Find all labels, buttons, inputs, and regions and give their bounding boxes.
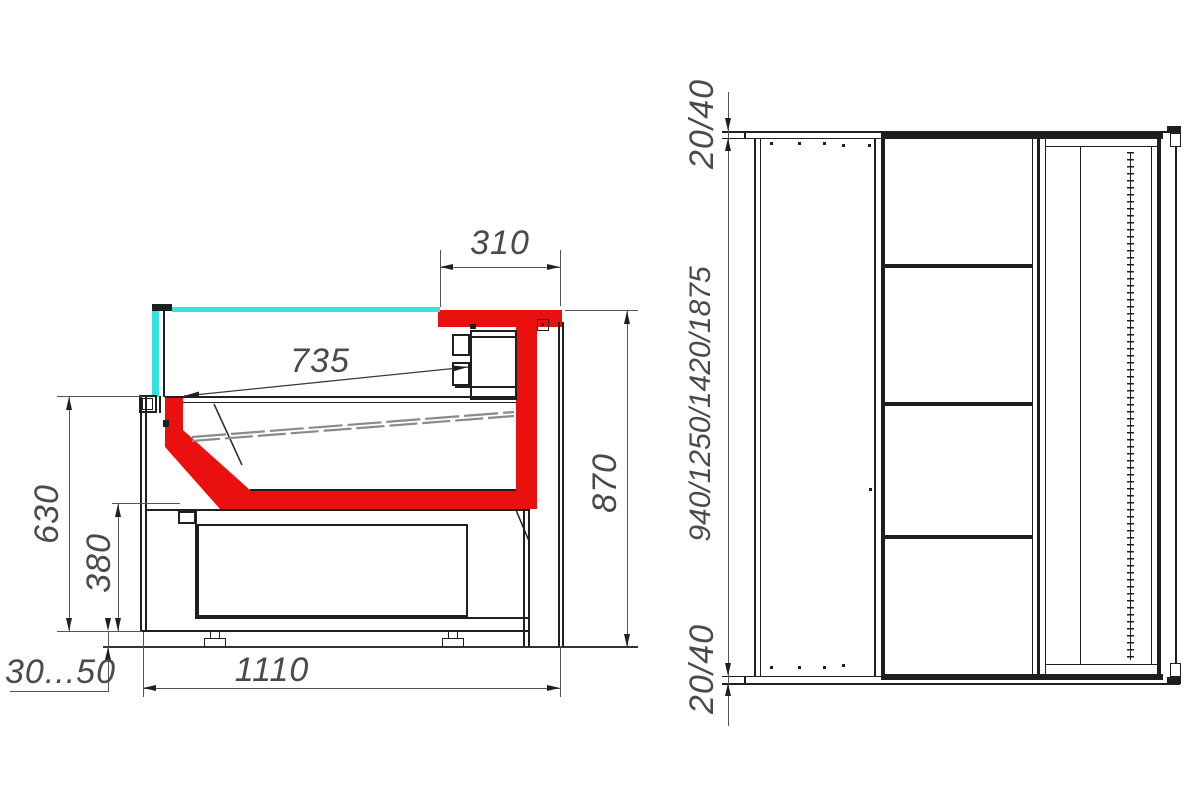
dim-310-label: 310 (470, 226, 530, 260)
plan-bottom-edge-outer (722, 683, 1180, 685)
dim-2040-top-label: 20/40 (685, 99, 719, 169)
shelf-divider-1 (885, 264, 1033, 268)
screw-dot (842, 664, 845, 667)
dim-630-label: 630 (30, 479, 64, 549)
glass-section-left-line (1045, 139, 1046, 676)
red-profile-overlay (0, 0, 1200, 800)
corner-bracket-bottom-block (1170, 663, 1181, 677)
dim-380-label: 380 (82, 528, 116, 598)
rear-compartment-wall-a (523, 509, 525, 647)
dim-870-arrow-bottom (624, 634, 630, 647)
well-floor-line (250, 489, 516, 491)
dim-870-arrow-top (624, 311, 630, 324)
dim-feet-shelf (10, 691, 108, 692)
dim-2040-top-arrow-lower (725, 138, 731, 151)
front-panel-outer (140, 396, 142, 632)
fastener-dot (541, 323, 544, 326)
corner-bracket-bottom-bar (1167, 677, 1181, 684)
evaporator-bracket-lower (452, 362, 470, 386)
dim-1110-arrow-left (143, 685, 156, 691)
dim-1110-arrow-right (547, 685, 560, 691)
front-bracket-inner (142, 398, 153, 410)
dim-1110-ext-right (560, 646, 561, 697)
dim-length-options-label: 940/1250/1420/1875 (684, 234, 718, 574)
screw-dot (842, 144, 845, 147)
deck-surface-line-a (192, 412, 514, 437)
front-bracket-edge (159, 396, 161, 413)
glass-band-top-line (1045, 146, 1160, 147)
screw-dot (869, 488, 872, 491)
plan-bottom-band-end (744, 676, 746, 684)
evaporator-mount-mark (470, 324, 476, 329)
dim-630-arrow-top (66, 397, 72, 410)
corner-bracket-top-bar (1167, 126, 1181, 133)
dim-380-arrow-bottom (115, 618, 121, 631)
glass-curve-line (1080, 147, 1081, 665)
dim-2040-bottom-label: 20/40 (685, 644, 719, 714)
dim-380-arrow-top (115, 504, 121, 517)
dim-1110-label: 1110 (232, 653, 312, 687)
front-panel-inner (145, 396, 147, 632)
well-liner-line (214, 404, 242, 465)
base-step-tab (178, 511, 196, 524)
screw-dot (798, 142, 801, 145)
left-panel-right-edge (874, 139, 876, 676)
front-fastener-mark (163, 420, 169, 427)
screw-dot (823, 666, 826, 669)
screw-dot (823, 142, 826, 145)
rear-wall-edge (562, 322, 564, 647)
glass-top-cap (152, 304, 172, 311)
well-left-heavy-edge (881, 133, 885, 679)
dim-380-line (118, 504, 119, 631)
dim-feet-label: 30...50 (5, 655, 110, 689)
screw-dot (770, 666, 773, 669)
red-front-profile (165, 398, 537, 509)
top-glass-horizontal (172, 307, 440, 312)
left-panel-outer-edge (754, 139, 756, 676)
dim-735-label: 735 (285, 344, 355, 378)
dim-310-ext-left (440, 250, 441, 307)
well-top-inner-line (183, 402, 516, 403)
base-bottom-inner-line (195, 617, 530, 619)
dim-1110-line (143, 688, 560, 689)
corner-bracket-top-block (1170, 133, 1181, 147)
well-right-edge-a (1032, 139, 1033, 676)
evaporator-box (470, 330, 517, 400)
shelf-divider-3 (885, 535, 1033, 539)
dim-feet-arrow-top (105, 618, 111, 631)
dim-310-ext-right (560, 250, 561, 306)
front-outer-edge (1175, 146, 1177, 664)
dim-870-line (627, 311, 628, 647)
glass-front-line (1151, 147, 1152, 665)
screw-dot (868, 144, 871, 147)
evaporator-top-line (470, 336, 517, 338)
left-panel-inner-edge (760, 139, 761, 676)
drawing-canvas: 310 735 630 380 870 1110 30... (0, 0, 1200, 800)
dim-630-arrow-bottom (66, 618, 72, 631)
well-top-line (165, 396, 517, 398)
well-top-heavy-line (881, 132, 1163, 138)
evaporator-bottom-line (455, 386, 517, 388)
screw-dot (798, 666, 801, 669)
dim-2040-bottom-arrow-upper (725, 663, 731, 676)
dim-310-arrow-left (440, 264, 453, 270)
rear-compartment-wall-b (528, 509, 530, 647)
dim-870-label: 870 (588, 448, 622, 518)
rear-wall-outer (558, 322, 560, 647)
well-right-edge-b (1037, 139, 1040, 676)
plan-dim-line (728, 92, 729, 726)
base-shell-bottom-line (140, 630, 530, 632)
glass-band-bottom-line (1045, 664, 1160, 665)
well-bottom-heavy-line (881, 674, 1163, 680)
dim-630-ext-bottom (57, 631, 142, 632)
evaporator-bracket-upper (452, 334, 470, 356)
deck-surface-line-b (192, 416, 514, 441)
front-glass-vertical (152, 311, 159, 397)
dim-630-line (69, 397, 70, 631)
glass-inner-edge (163, 311, 165, 397)
dim-2040-top-arrow-upper (725, 118, 731, 131)
screw-dot (770, 142, 773, 145)
plan-top-band-end (744, 131, 746, 139)
glass-front-heavy-edge (1157, 136, 1161, 679)
plan-top-edge-inner (722, 138, 1163, 139)
base-top-line (146, 509, 530, 511)
dim-380-ext-top (112, 503, 180, 504)
red-rear-column (516, 327, 537, 491)
floor-line (103, 646, 638, 648)
dim-310-line (440, 267, 560, 268)
dim-310-arrow-right (547, 264, 560, 270)
base-inner-panel (197, 524, 468, 617)
side-view-line-overlay (0, 0, 1200, 800)
dim-2040-bottom-arrow-lower (725, 683, 731, 696)
shelf-divider-2 (885, 402, 1033, 406)
glass-hinge-center-line (1130, 152, 1131, 660)
